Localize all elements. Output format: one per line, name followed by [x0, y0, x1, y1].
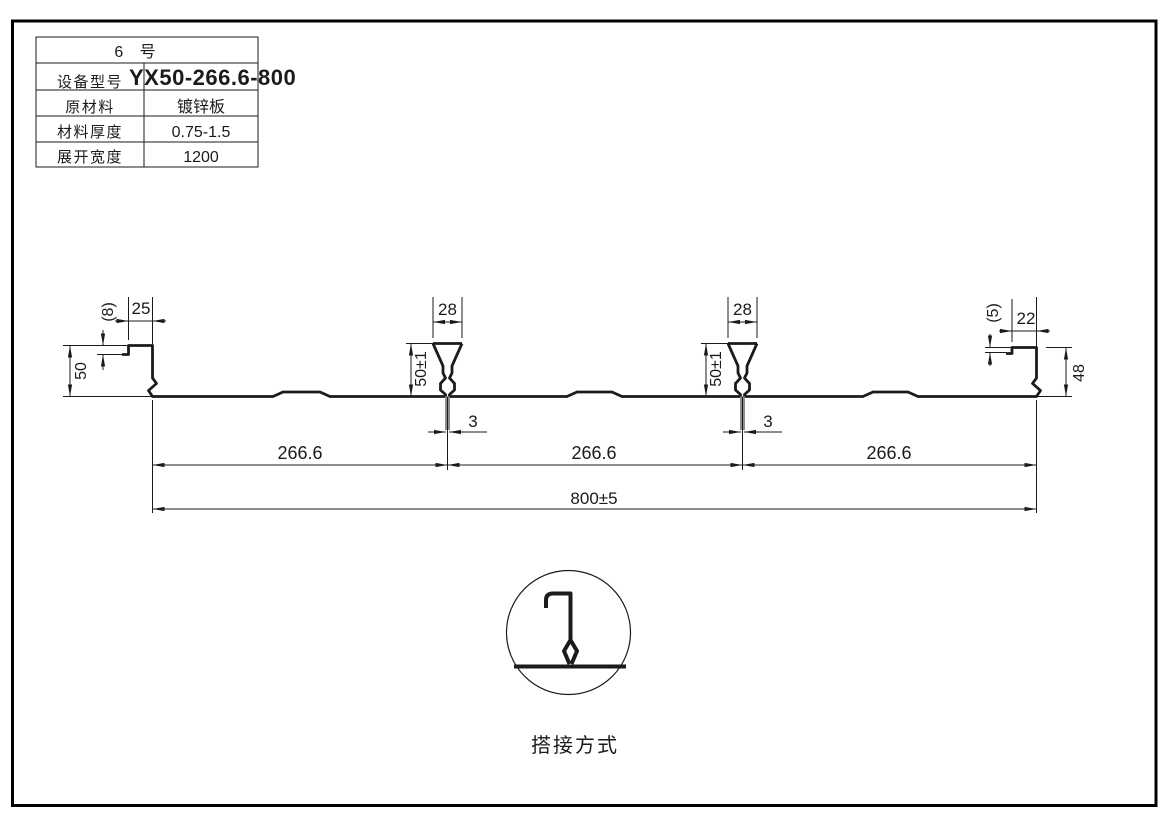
profile-right-section	[745, 348, 1041, 397]
row-width-value: 1200	[183, 149, 219, 166]
row-thickness-value: 0.75-1.5	[172, 124, 231, 141]
dim-pitch-2: 266.6	[571, 443, 616, 463]
extension-lines	[63, 297, 1072, 513]
spec-table: 6 号 设备型号 YX50-266.6-800 原材料 镀锌板 材料厚度 0.7…	[36, 37, 296, 167]
detail-seam-right	[571, 640, 578, 664]
dim-right-height: 48	[1071, 364, 1088, 382]
row-material-label: 原材料	[65, 99, 115, 116]
dim-left-top: 25	[132, 299, 151, 318]
dim-rib1-width: 28	[438, 300, 457, 319]
dim-left-height: 50	[73, 362, 90, 380]
lap-joint-detail: 搭接方式	[507, 571, 631, 758]
dimension-lines	[70, 321, 1066, 509]
dim-rib2-height: 50±1	[708, 351, 725, 387]
table-title: 6 号	[114, 43, 161, 61]
cad-drawing: 6 号 设备型号 YX50-266.6-800 原材料 镀锌板 材料厚度 0.7…	[0, 0, 1169, 827]
detail-seam-left	[564, 640, 571, 664]
row-material-value: 镀锌板	[177, 98, 225, 116]
row-thickness-label: 材料厚度	[57, 124, 123, 141]
dim-right-top: 22	[1017, 309, 1036, 328]
dim-rib1-height: 50±1	[413, 351, 430, 387]
rib1-left-wall	[433, 344, 446, 397]
dim-pitch-3: 266.6	[866, 443, 911, 463]
detail-caption: 搭接方式	[531, 734, 619, 757]
dim-rib2-slot: 3	[763, 412, 772, 431]
row-model-value: YX50-266.6-800	[129, 65, 296, 90]
rib1-right-wall	[450, 344, 463, 397]
dim-right-step: (5)	[985, 303, 1002, 323]
profile-middle-section	[450, 392, 740, 397]
dimension-texts: 50 (8) 25 28 50±1 3 28 50±1 3 (5) 22 48 …	[73, 299, 1088, 508]
rib2-right-wall	[745, 344, 758, 397]
drawing-sheet: 6 号 设备型号 YX50-266.6-800 原材料 镀锌板 材料厚度 0.7…	[0, 0, 1169, 827]
detail-hook	[546, 594, 571, 641]
dim-rib2-width: 28	[733, 300, 752, 319]
dim-overall: 800±5	[570, 489, 617, 508]
row-width-label: 展开宽度	[57, 149, 123, 166]
profile-left-section	[122, 346, 445, 397]
rib2-left-wall	[728, 344, 741, 397]
dim-left-step: (8)	[100, 302, 117, 322]
dim-pitch-1: 266.6	[277, 443, 322, 463]
profile-outline	[122, 344, 1041, 397]
dim-rib1-slot: 3	[468, 412, 477, 431]
row-model-label: 设备型号	[57, 74, 123, 91]
